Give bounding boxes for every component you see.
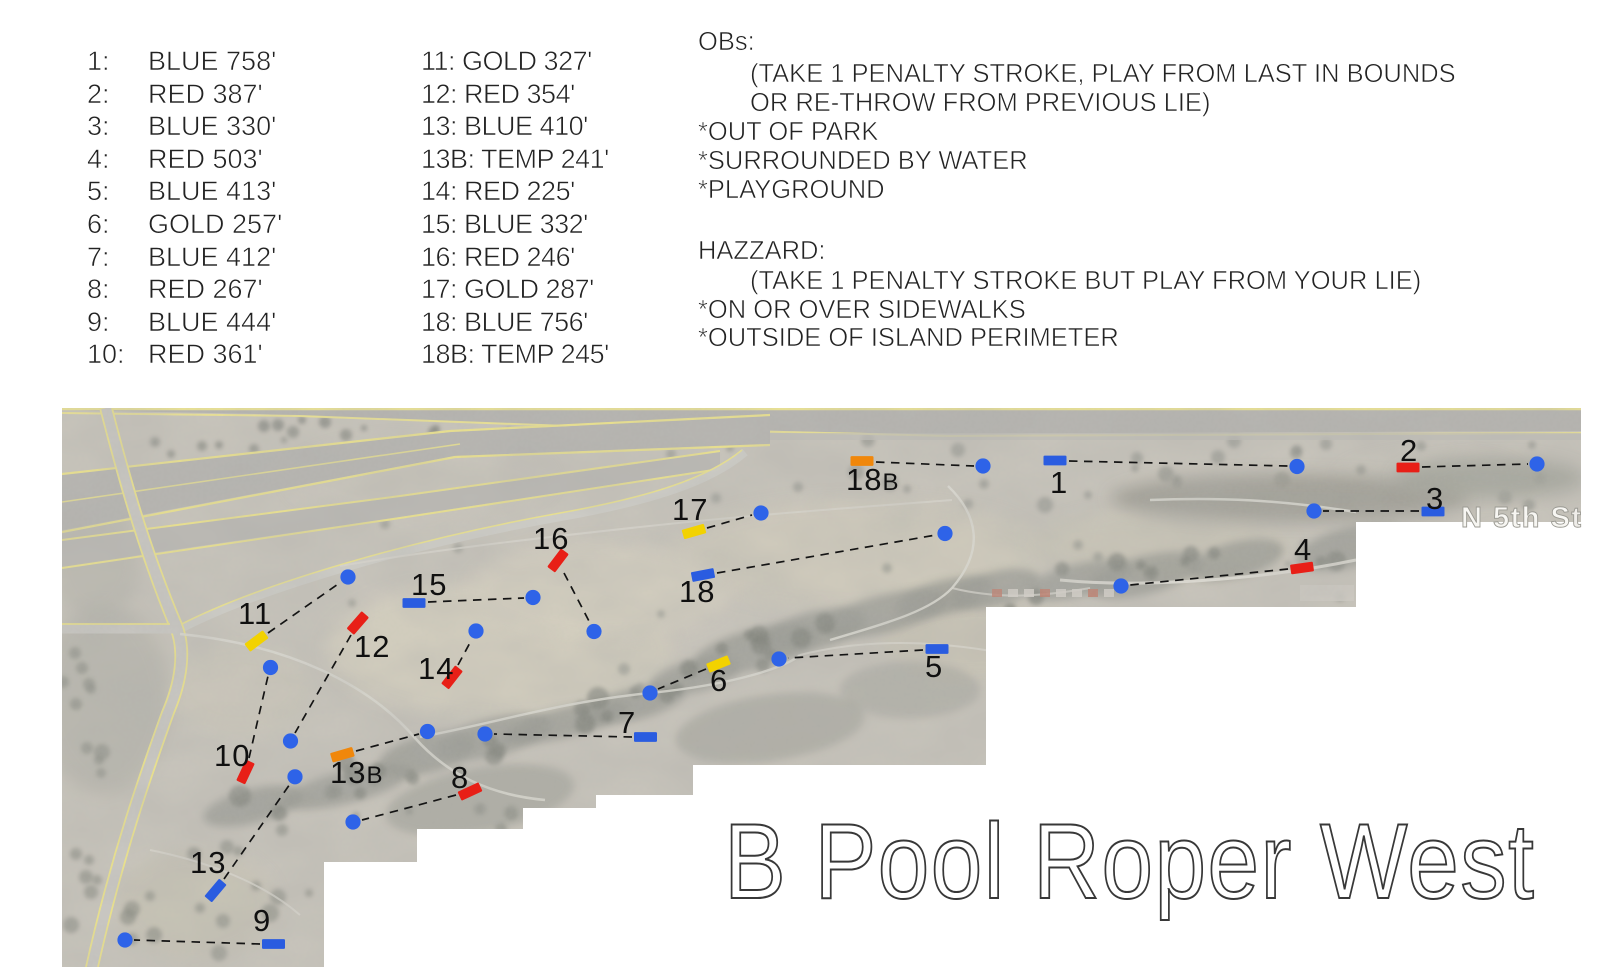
svg-text:18: 18	[679, 574, 715, 609]
svg-text:17: 17	[672, 492, 708, 527]
svg-text:11: 11	[238, 596, 272, 631]
svg-text:14: 14	[418, 651, 454, 686]
svg-text:5: 5	[925, 649, 943, 684]
svg-text:3: 3	[1426, 481, 1444, 516]
svg-text:16: 16	[533, 521, 569, 556]
svg-text:4: 4	[1294, 532, 1312, 567]
svg-text:9: 9	[253, 903, 271, 938]
svg-text:7: 7	[618, 705, 636, 740]
svg-text:10: 10	[214, 738, 250, 773]
svg-text:N 5th St: N 5th St	[1461, 502, 1583, 534]
svg-text:8: 8	[451, 760, 469, 795]
svg-text:12: 12	[354, 629, 390, 664]
svg-text:15: 15	[411, 567, 447, 602]
svg-text:13: 13	[190, 845, 226, 880]
svg-text:2: 2	[1400, 433, 1418, 468]
svg-text:1: 1	[1050, 465, 1068, 500]
svg-text:6: 6	[710, 663, 728, 698]
